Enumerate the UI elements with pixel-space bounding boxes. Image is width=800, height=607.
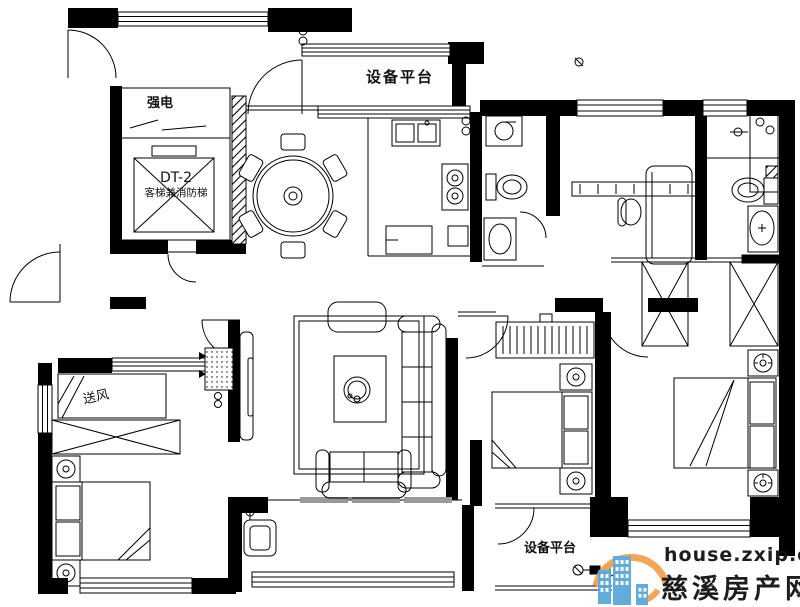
tv-cabinet	[240, 332, 253, 440]
clothes-rack	[496, 314, 594, 358]
bath2-vanity	[748, 206, 778, 252]
window	[112, 358, 218, 371]
stove	[442, 164, 468, 210]
wardrobe	[52, 420, 180, 454]
nightstand	[748, 350, 778, 376]
air-supply-duct: 送风	[58, 374, 166, 418]
floor-plan: 强电 DT-2 客梯兼消防梯 设备平台	[0, 0, 800, 607]
bath1-vanity	[486, 116, 522, 146]
bath2-faucet	[730, 128, 748, 136]
air-supply-label: 送风	[82, 387, 111, 407]
equipment-platform-bottom-label: 设备平台	[524, 540, 576, 556]
bathroom-1	[484, 116, 527, 260]
bedroom1-door	[10, 252, 60, 302]
platform-door	[498, 508, 534, 544]
study-room	[572, 166, 696, 264]
balcony	[244, 506, 276, 556]
window	[703, 100, 747, 116]
window	[628, 520, 750, 537]
closet-rail	[572, 182, 696, 196]
nightstand	[560, 468, 592, 494]
strong-electric-room: 强电	[118, 88, 230, 138]
window	[318, 106, 470, 118]
window	[80, 578, 192, 593]
sideboard	[328, 302, 386, 332]
floor-drain	[766, 166, 778, 178]
washbasin	[484, 218, 516, 260]
watermark: house.zxip.com 慈溪房产网	[596, 544, 800, 605]
window	[252, 572, 454, 587]
bath1-door	[520, 212, 546, 238]
bed	[492, 392, 592, 468]
nightstand	[748, 470, 778, 496]
watermark-site-url: house.zxip.com	[664, 544, 800, 566]
sofa	[398, 316, 446, 488]
outlet-symbols	[299, 27, 583, 135]
master-bed	[674, 378, 776, 468]
watermark-logo	[596, 556, 666, 605]
toilet	[732, 178, 778, 204]
washing-machine	[244, 506, 276, 556]
equipment-platform-top: 设备平台	[366, 68, 434, 86]
bedroom-2	[492, 314, 594, 494]
master-bedroom	[642, 262, 778, 496]
window	[302, 44, 450, 56]
fridge	[386, 226, 432, 254]
elevator: DT-2 客梯兼消防梯	[118, 138, 230, 240]
shoe-cabinet	[199, 348, 233, 408]
equipment-platform-top-label: 设备平台	[366, 68, 434, 86]
dining-set	[238, 134, 348, 258]
elevator-name-label: 客梯兼消防梯	[145, 186, 208, 199]
elevator-code-label: DT-2	[160, 170, 192, 186]
desk	[646, 166, 692, 264]
stair-door	[168, 254, 196, 282]
bathroom-2	[707, 114, 780, 263]
nightstand	[52, 456, 80, 482]
bedroom-1: 送风	[52, 374, 180, 586]
strong-electric-label: 强电	[147, 95, 173, 111]
kitchen	[386, 120, 468, 254]
window	[577, 100, 663, 116]
watermark-site-name: 慈溪房产网	[661, 573, 800, 605]
coffee-table	[334, 356, 386, 422]
toilet	[486, 174, 527, 200]
bed	[52, 482, 150, 560]
window	[118, 12, 268, 26]
wardrobe	[730, 262, 778, 346]
desk-chair	[618, 198, 641, 226]
nightstand	[560, 364, 592, 390]
kitchen-cabinet	[448, 226, 468, 246]
window	[38, 385, 52, 433]
kitchen-sink	[392, 120, 440, 146]
buildings-icon	[598, 556, 648, 605]
floorplan-canvas: 强电 DT-2 客梯兼消防梯 设备平台	[0, 0, 800, 607]
entry-door	[68, 30, 116, 78]
